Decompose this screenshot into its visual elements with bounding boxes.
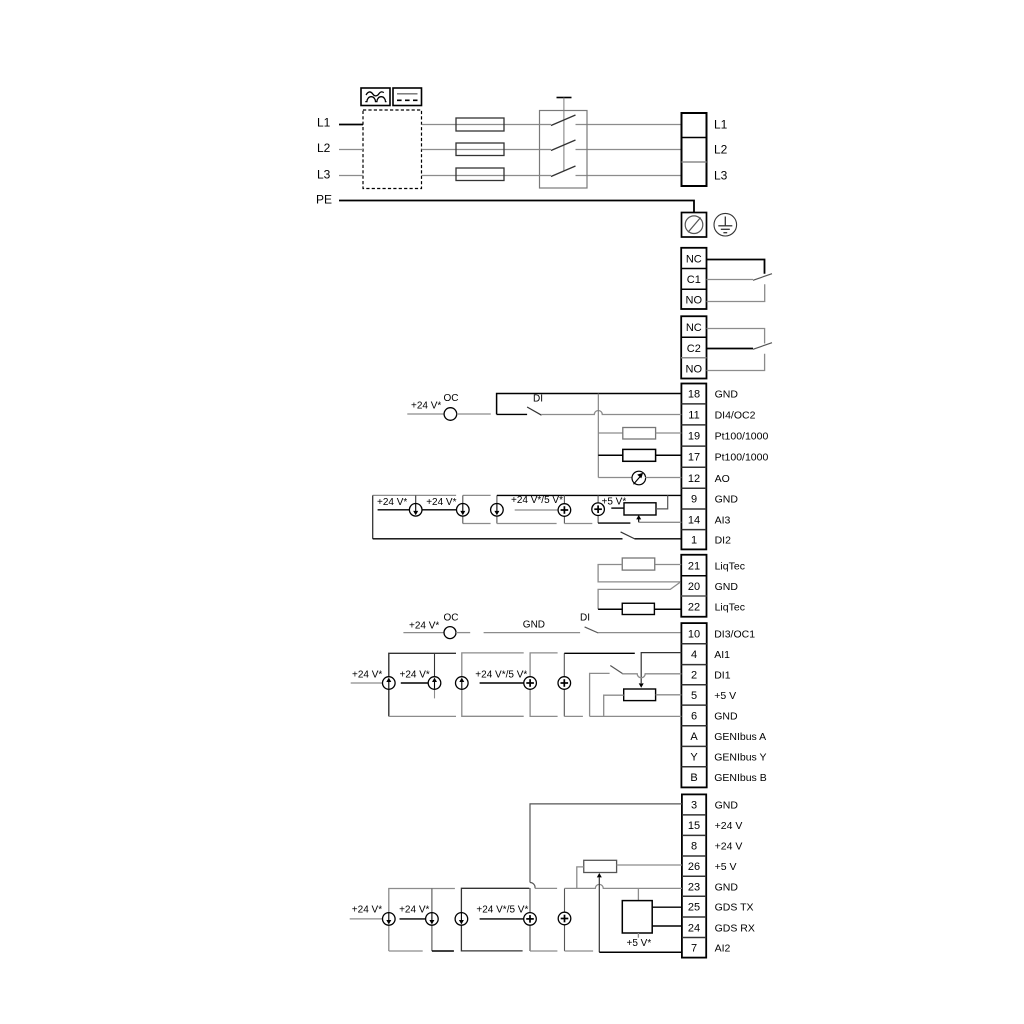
svg-text:17: 17 [688, 452, 700, 464]
svg-text:3: 3 [691, 800, 697, 812]
svg-text:L3: L3 [714, 169, 728, 183]
svg-text:GENIbus B: GENIbus B [714, 772, 767, 784]
svg-text:+24 V: +24 V [715, 841, 743, 853]
svg-text:23: 23 [688, 881, 700, 893]
svg-text:DI: DI [533, 394, 543, 405]
svg-text:NC: NC [686, 254, 702, 266]
svg-text:L1: L1 [714, 118, 728, 132]
svg-text:NO: NO [686, 295, 703, 307]
svg-text:24: 24 [688, 922, 700, 934]
svg-text:22: 22 [688, 601, 700, 613]
svg-text:+24 V*: +24 V* [377, 497, 407, 508]
svg-text:5: 5 [691, 690, 697, 702]
svg-text:AI3: AI3 [715, 514, 731, 526]
svg-text:19: 19 [688, 431, 700, 443]
svg-text:+24 V*/5 V*: +24 V*/5 V* [511, 495, 563, 506]
svg-text:+24 V*/5 V*: +24 V*/5 V* [475, 669, 527, 680]
svg-text:12: 12 [688, 473, 700, 485]
svg-text:GENIbus A: GENIbus A [714, 731, 766, 743]
svg-text:7: 7 [691, 943, 697, 955]
svg-text:25: 25 [688, 902, 700, 914]
svg-text:DI1: DI1 [714, 670, 731, 682]
svg-text:A: A [690, 731, 698, 743]
svg-text:Pt100/1000: Pt100/1000 [715, 452, 769, 464]
svg-text:+24 V*: +24 V* [411, 401, 441, 412]
svg-text:GND: GND [715, 389, 739, 401]
svg-text:+24 V*: +24 V* [426, 497, 456, 508]
svg-text:+24 V*: +24 V* [352, 905, 382, 916]
svg-text:+5 V*: +5 V* [602, 497, 627, 508]
svg-text:9: 9 [691, 494, 697, 506]
svg-text:OC: OC [444, 613, 459, 624]
svg-text:GND: GND [715, 800, 739, 812]
svg-text:2: 2 [691, 670, 697, 682]
svg-text:LiqTec: LiqTec [715, 601, 745, 613]
svg-text:21: 21 [688, 560, 700, 572]
svg-text:10: 10 [688, 629, 700, 641]
svg-text:C2: C2 [687, 343, 701, 355]
svg-text:NC: NC [686, 322, 702, 334]
svg-text:+24 V*: +24 V* [409, 620, 439, 631]
svg-text:DI3/OC1: DI3/OC1 [714, 629, 755, 641]
svg-text:PE: PE [316, 193, 332, 207]
svg-text:C1: C1 [687, 274, 701, 286]
svg-text:4: 4 [691, 649, 697, 661]
svg-text:20: 20 [688, 581, 700, 593]
svg-text:Y: Y [690, 752, 698, 764]
svg-text:+24 V*: +24 V* [352, 669, 382, 680]
svg-text:GND: GND [715, 494, 739, 506]
svg-text:DI: DI [580, 613, 590, 624]
svg-text:GDS TX: GDS TX [715, 902, 754, 914]
svg-text:+5 V*: +5 V* [627, 938, 652, 949]
svg-text:26: 26 [688, 861, 700, 873]
svg-text:L2: L2 [714, 143, 728, 157]
svg-text:1: 1 [691, 535, 697, 547]
svg-text:L2: L2 [317, 141, 331, 155]
svg-text:14: 14 [688, 514, 700, 526]
svg-text:NO: NO [686, 364, 703, 376]
svg-text:+24 V: +24 V [715, 820, 743, 832]
svg-text:+24 V*: +24 V* [400, 669, 430, 680]
svg-text:+24 V*/5 V*: +24 V*/5 V* [476, 905, 528, 916]
svg-text:+24 V*: +24 V* [399, 905, 429, 916]
svg-text:GND: GND [715, 581, 739, 593]
svg-text:18: 18 [688, 389, 700, 401]
svg-text:LiqTec: LiqTec [715, 560, 745, 572]
svg-text:GND: GND [523, 619, 545, 630]
svg-text:11: 11 [688, 409, 699, 421]
svg-text:B: B [690, 772, 697, 784]
svg-text:DI2: DI2 [715, 535, 732, 547]
svg-text:GENIbus Y: GENIbus Y [714, 752, 766, 764]
svg-text:Pt100/1000: Pt100/1000 [715, 431, 769, 443]
svg-text:15: 15 [688, 820, 700, 832]
svg-text:L3: L3 [317, 168, 331, 182]
svg-text:AO: AO [715, 473, 730, 485]
svg-text:8: 8 [691, 841, 697, 853]
svg-text:GND: GND [714, 711, 738, 723]
svg-text:+5 V: +5 V [714, 690, 736, 702]
svg-text:GND: GND [715, 881, 739, 893]
svg-text:OC: OC [444, 393, 459, 404]
svg-text:6: 6 [691, 711, 697, 723]
svg-text:AI1: AI1 [714, 649, 730, 661]
svg-text:AI2: AI2 [715, 943, 731, 955]
svg-text:+5 V: +5 V [715, 861, 737, 873]
svg-text:L1: L1 [317, 116, 331, 130]
svg-text:DI4/OC2: DI4/OC2 [715, 409, 756, 421]
svg-text:GDS RX: GDS RX [715, 922, 755, 934]
